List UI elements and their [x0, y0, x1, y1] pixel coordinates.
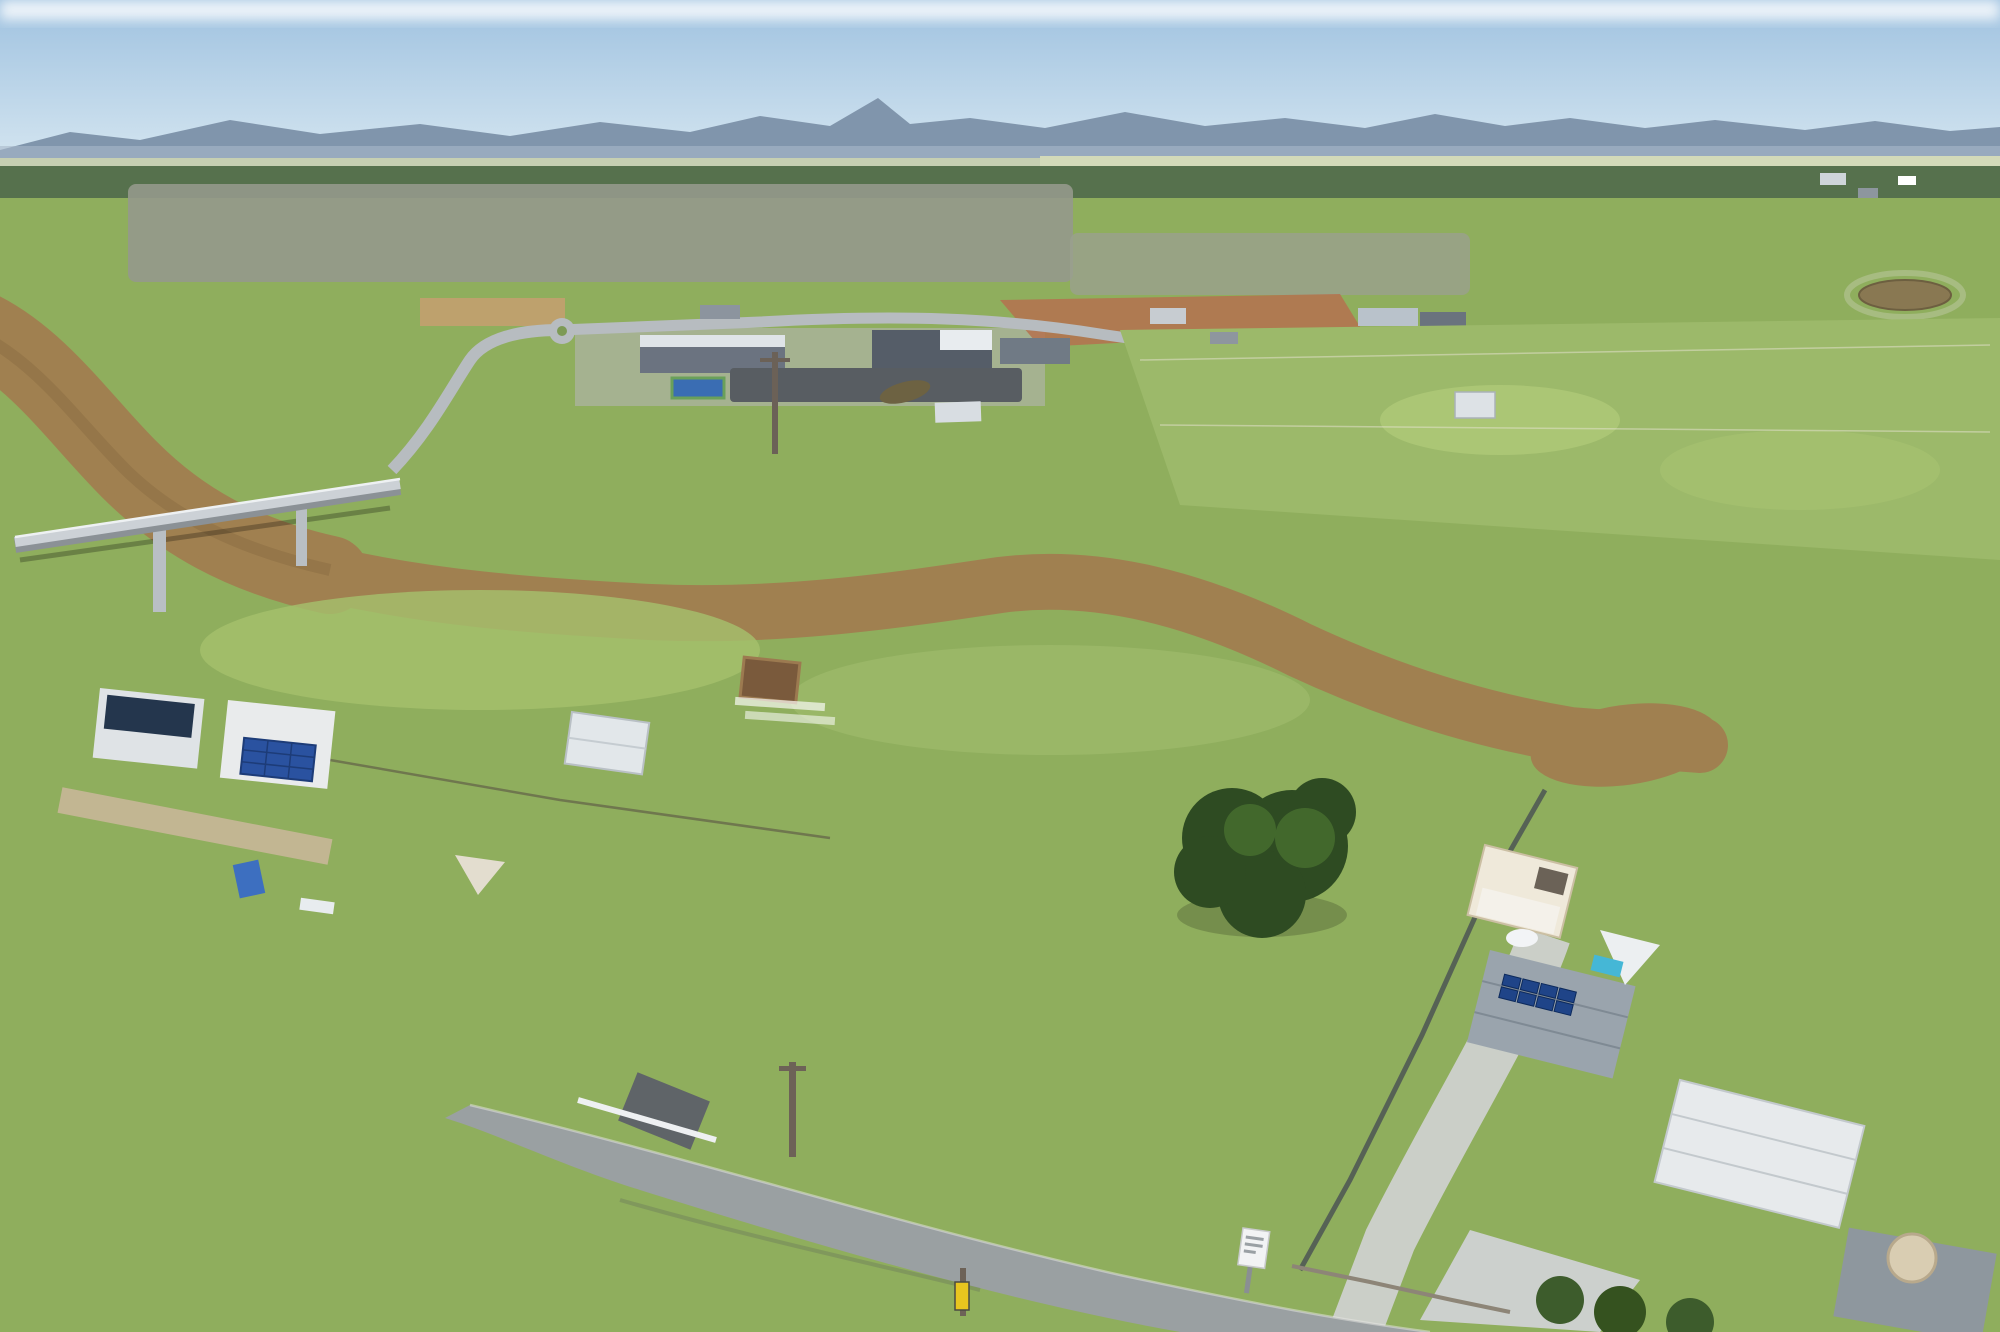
- house-left-2: [220, 700, 336, 789]
- suburb-ground: [128, 184, 1073, 282]
- greenhouse: [935, 401, 982, 423]
- farm-shed: [1455, 392, 1495, 418]
- farm-shed-3: [1210, 332, 1238, 344]
- farm-dam: [1859, 280, 1951, 310]
- paddock-shed: [565, 712, 649, 774]
- cloud-band: [0, 0, 2000, 20]
- water-tank: [1888, 1234, 1936, 1282]
- farm-shed-2: [1150, 308, 1186, 324]
- tennis-courts: [672, 378, 724, 398]
- dirt-patch: [420, 298, 565, 326]
- suburb-ground-right: [1070, 233, 1470, 295]
- bridge-pylon: [296, 506, 307, 566]
- aerial-scene: [0, 0, 2000, 1332]
- house-left-1: [93, 688, 205, 769]
- white-car: [1506, 929, 1538, 947]
- yellow-road-sign: [955, 1282, 969, 1310]
- aerial-photo: [0, 0, 2000, 1332]
- hut: [740, 657, 800, 703]
